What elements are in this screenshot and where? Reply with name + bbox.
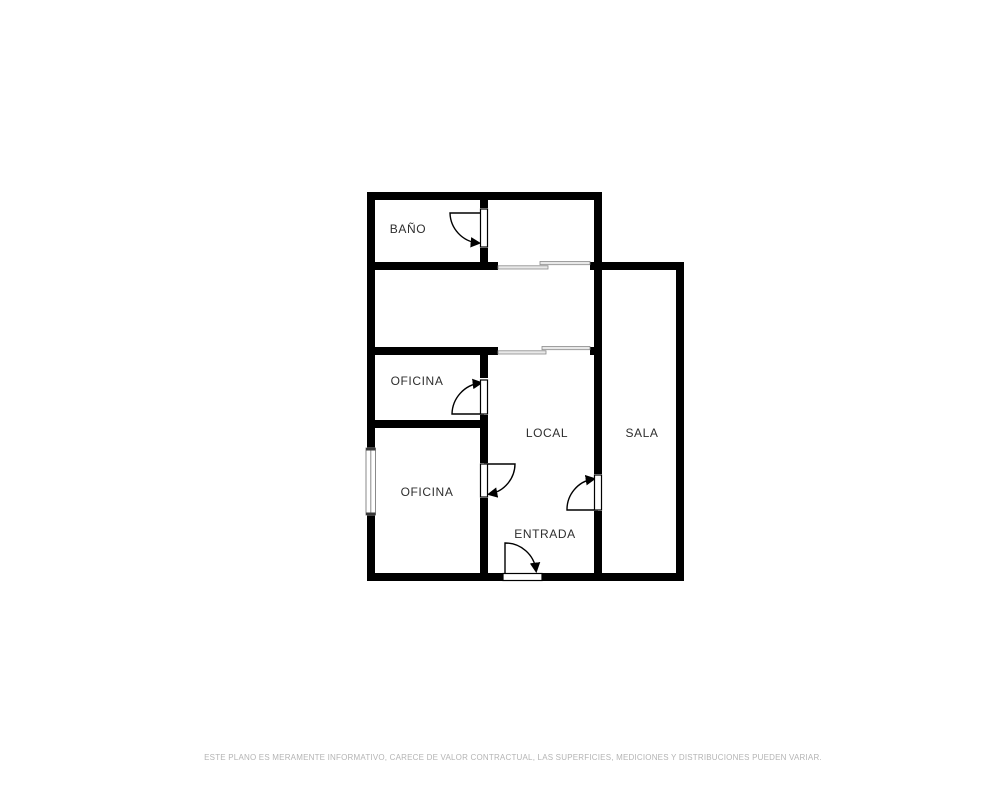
floor-plan: BAÑO OFICINA OFICINA LOCAL SALA ENTRADA <box>0 0 1000 800</box>
wall-center-right-upper <box>594 192 602 474</box>
wall-vb-upper <box>480 347 488 378</box>
wall-bottom-right <box>542 573 684 581</box>
wall-h1-right <box>590 262 602 270</box>
sliding-door-lower <box>498 347 590 355</box>
wall-sala-right <box>676 262 684 581</box>
oficina-top-door <box>452 380 488 414</box>
wall-vb-middle <box>480 415 488 463</box>
entrada-door <box>503 543 542 581</box>
wall-h2-left <box>367 347 498 355</box>
room-label-local: LOCAL <box>526 426 568 440</box>
room-label-sala: SALA <box>625 426 658 440</box>
room-label-oficina-top: OFICINA <box>391 374 444 388</box>
window <box>366 448 376 515</box>
wall-h3 <box>367 420 488 428</box>
sala-door <box>567 475 602 510</box>
wall-h2-right <box>590 347 602 355</box>
room-label-entrada: ENTRADA <box>514 527 576 541</box>
floor-plan-drawing <box>0 0 1000 800</box>
wall-va-lower <box>480 248 488 270</box>
wall-sala-top <box>594 262 684 270</box>
wall-va-upper <box>480 192 488 208</box>
wall-center-right-lower <box>594 511 602 581</box>
wall-vb-lower <box>480 498 488 581</box>
sliding-door-upper <box>498 262 590 270</box>
bano-door <box>450 209 488 247</box>
wall-left <box>367 192 375 581</box>
wall-h1-left <box>367 262 498 270</box>
oficina-bottom-door <box>481 464 516 497</box>
disclaimer-text: ESTE PLANO ES MERAMENTE INFORMATIVO, CAR… <box>204 753 822 762</box>
room-label-oficina-bottom: OFICINA <box>401 485 454 499</box>
room-label-bano: BAÑO <box>390 222 426 236</box>
